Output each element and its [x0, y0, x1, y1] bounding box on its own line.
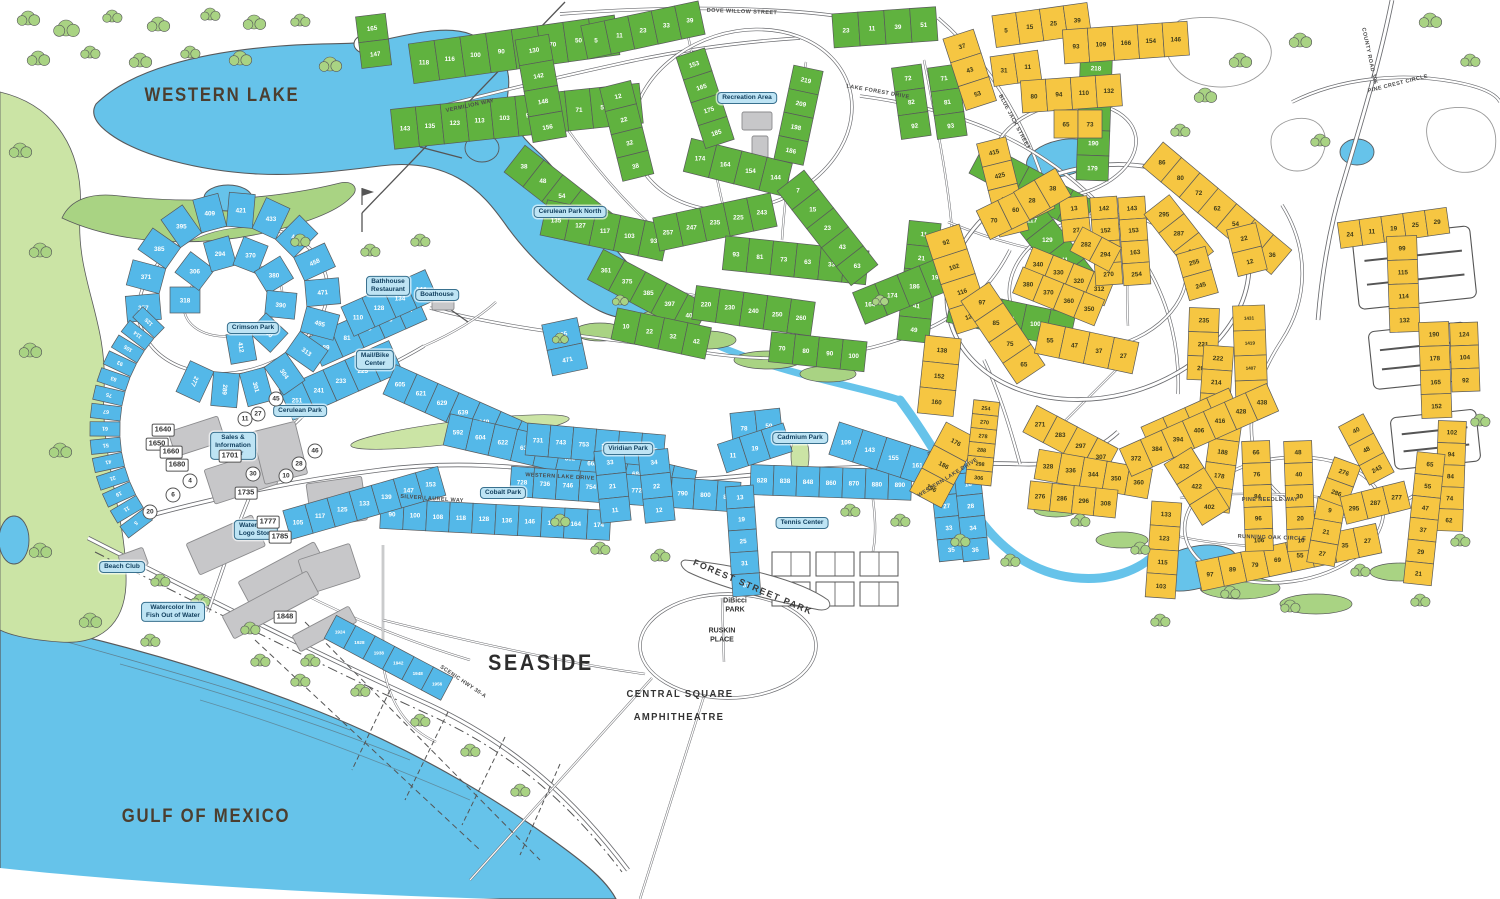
lot-number: 21 [609, 483, 617, 491]
lot-number: 433 [266, 216, 277, 223]
lot-number: 127 [575, 223, 586, 230]
tree-canopy [21, 147, 32, 158]
lot-number: 29 [1417, 549, 1425, 557]
circled-number: 28 [292, 457, 307, 472]
tree-icon [301, 654, 320, 666]
lot-number: 1407 [1246, 366, 1257, 371]
lot-number: 90 [498, 49, 506, 56]
lot-number: 33 [606, 459, 614, 467]
lot-number: 138 [936, 347, 948, 355]
lot-number: 384 [1152, 446, 1163, 453]
lot-number: 179 [1087, 165, 1098, 172]
circled-number: 20 [143, 505, 158, 520]
lot-number: 289 [220, 384, 228, 396]
circled-number: 6 [166, 488, 181, 503]
lot-number: 13 [1070, 205, 1078, 213]
lot-number: 19 [751, 445, 759, 452]
lot-number: 115 [1398, 269, 1409, 276]
lot-number: 790 [677, 491, 688, 498]
lot-number: 743 [556, 439, 567, 446]
lot-number: 166 [1121, 40, 1132, 47]
lot-number: 621 [416, 391, 427, 398]
lot-number: 75 [1006, 341, 1014, 348]
tree-canopy [1351, 568, 1359, 576]
lot-number: 271 [1035, 421, 1046, 428]
lot-number: 296 [1079, 498, 1090, 505]
lot-number: 117 [600, 228, 611, 235]
tree-canopy [1289, 38, 1299, 48]
tree-canopy [661, 552, 670, 561]
lot-number: 218 [1091, 65, 1102, 72]
tennis-center-banner: Tennis Center [776, 517, 829, 529]
lot-number: 66 [1252, 449, 1260, 456]
lot-number: 402 [1204, 504, 1215, 511]
building-number-box: 1848 [274, 611, 297, 624]
lot-number: 190 [1429, 331, 1440, 338]
tree-canopy [1291, 603, 1300, 612]
lot-number: 139 [381, 494, 392, 501]
lot-number: 800 [700, 492, 711, 499]
lot-number: 33 [663, 22, 671, 29]
lot-number: 49 [910, 327, 918, 335]
lot-number: 94 [1448, 451, 1456, 458]
tree-canopy [1301, 37, 1312, 48]
lot-number: 21 [918, 255, 926, 263]
tree-icon [147, 17, 170, 32]
lot-number: 81 [756, 254, 764, 261]
tree-canopy [1461, 537, 1470, 546]
lot-number: 39 [1074, 17, 1082, 24]
lot-number: 69 [1274, 557, 1282, 564]
lot-number: 79 [1251, 562, 1259, 569]
tree-icon [103, 10, 122, 22]
tree-canopy [461, 748, 469, 756]
lot-number: 21 [1415, 570, 1423, 578]
lot-number: 37 [1095, 348, 1103, 355]
lot-number: 1942 [393, 661, 404, 666]
lot-number: 71 [576, 107, 584, 114]
tree-canopy [1221, 590, 1229, 598]
lot-number: 241 [314, 388, 325, 395]
lot-number: 1956 [432, 681, 443, 686]
lot-number: 32 [669, 333, 677, 340]
lot-number: 254 [981, 406, 991, 413]
lot-number: 1924 [335, 630, 346, 635]
tree-canopy [361, 248, 369, 256]
lot-number: 143 [400, 125, 411, 132]
tree-canopy [1471, 57, 1480, 66]
lot-number: 235 [1199, 317, 1210, 324]
lot-number: 287 [1370, 500, 1381, 507]
lot-number: 282 [1081, 241, 1092, 248]
lot-number: 225 [733, 214, 744, 221]
lot-number: 22 [653, 483, 661, 491]
lot-number: 5 [594, 37, 598, 44]
lot-number: 29 [1434, 219, 1442, 226]
lot-number: 27 [943, 503, 951, 511]
lot-number: 73 [780, 256, 788, 263]
tree-canopy [1419, 18, 1429, 28]
lot-number: 160 [931, 399, 943, 407]
cerulean-park-banner: Cerulean Park [273, 405, 327, 417]
tree-canopy [141, 638, 149, 646]
lot-number: 153 [425, 481, 436, 488]
lot-number: 283 [1055, 432, 1066, 439]
lot-number: 110 [353, 314, 364, 321]
lot-number: 385 [154, 246, 165, 253]
tree-canopy [251, 658, 259, 666]
lot-number: 106 [1254, 537, 1265, 544]
tree-canopy [191, 49, 200, 58]
lot-number: 247 [686, 224, 697, 231]
tree-canopy [1131, 546, 1139, 554]
lot-number: 174 [887, 292, 898, 299]
road-surface [640, 696, 704, 899]
lot-number: 55 [1046, 337, 1054, 344]
lot-number: 860 [826, 480, 837, 487]
lot-number: 27 [1364, 538, 1372, 545]
lot-number: 270 [1103, 271, 1114, 279]
lot-number: 143 [1127, 205, 1138, 213]
lot-number: 336 [1065, 467, 1076, 474]
lot-number: 27 [1120, 353, 1128, 360]
lot-number: 308 [1100, 500, 1111, 507]
lot-number: 1948 [413, 671, 424, 676]
tree-canopy [891, 518, 899, 526]
tree-icon [411, 714, 430, 726]
tree-canopy [27, 56, 37, 66]
tree-canopy [1206, 92, 1217, 103]
lot-number: 25 [1412, 222, 1420, 229]
lot-number: 80 [802, 348, 810, 355]
lot-number: 320 [1074, 278, 1085, 285]
lot-number: 11 [869, 26, 876, 33]
lot-number: 190 [1088, 140, 1099, 147]
lot-number: 772 [631, 487, 642, 494]
tree-canopy [311, 657, 320, 666]
tree-canopy [901, 517, 910, 526]
tree-icon [411, 234, 430, 246]
lot-number: 370 [1043, 290, 1054, 297]
lot-number: 605 [395, 381, 406, 388]
tree-canopy [291, 678, 299, 686]
lot-number: 880 [872, 481, 883, 488]
tree-canopy [591, 546, 599, 554]
lot-number: 222 [1212, 355, 1223, 363]
tree-canopy [1181, 127, 1190, 136]
tree-canopy [79, 618, 89, 628]
lot-number: 164 [720, 162, 731, 169]
lot-number: 114 [1399, 293, 1410, 300]
lot-number: 380 [1023, 281, 1034, 288]
lot-number: 240 [748, 308, 759, 315]
tree-canopy [54, 25, 65, 36]
lot-number: 838 [780, 478, 791, 485]
tree-icon [591, 542, 610, 554]
tree-canopy [1001, 558, 1009, 566]
lot-number: 67 [103, 408, 110, 415]
lot-number: 604 [475, 435, 486, 442]
tree-canopy [1451, 538, 1459, 546]
lot-number: 30 [1296, 493, 1304, 500]
lot-number: 294 [1100, 252, 1111, 259]
lot-number: 40 [1295, 471, 1303, 478]
lot-number: 84 [1254, 493, 1262, 500]
lot-number: 62 [1445, 517, 1453, 524]
lot-number: 728 [517, 479, 528, 486]
lot-number: 39 [894, 24, 902, 31]
tree-icon [54, 20, 80, 37]
lot-number: 165 [366, 25, 378, 33]
tree-icon [181, 46, 200, 58]
lot-number: 80 [1030, 93, 1038, 100]
lot-number: 125 [337, 507, 348, 514]
lot-number: 86 [1158, 159, 1166, 166]
lot-number: 146 [525, 519, 536, 526]
lot-number: 622 [498, 440, 509, 447]
lot-number: 15 [809, 206, 817, 213]
lot-number: 23 [824, 225, 832, 232]
lot-number: 50 [575, 38, 583, 45]
lot-number: 78 [740, 425, 748, 432]
lot-number: 318 [180, 297, 191, 304]
lot-number: 297 [1075, 443, 1086, 450]
lot-number: 128 [479, 516, 490, 523]
ring-road-surface [640, 594, 816, 698]
lot-number: 36 [1269, 252, 1277, 259]
tree-canopy [147, 22, 157, 32]
lot-number: 55 [1424, 483, 1432, 491]
lot-number: 152 [1100, 227, 1111, 235]
lot-number: 286 [1057, 496, 1068, 503]
tree-canopy [521, 787, 530, 796]
lot-number: 54 [558, 193, 566, 200]
lot-number: 65 [1020, 362, 1028, 369]
tree-canopy [951, 538, 959, 546]
lot-number: 47 [1421, 505, 1429, 513]
lot-number: 85 [992, 320, 1000, 327]
tree-canopy [1171, 128, 1179, 136]
lot-number: 60 [1012, 207, 1020, 214]
lot-number: 154 [1146, 38, 1157, 45]
lot-number: 113 [475, 118, 486, 125]
tree-canopy [1011, 557, 1020, 566]
viridian-park-banner: Viridian Park [603, 443, 653, 455]
lot-number: 118 [419, 59, 430, 66]
road-surface [1292, 77, 1500, 102]
lot-number: 154 [745, 168, 756, 175]
lot-number: 372 [1131, 455, 1142, 462]
lot-number: 220 [701, 301, 712, 308]
tree-canopy [113, 13, 122, 22]
tree-icon [201, 8, 220, 20]
tree-canopy [301, 658, 309, 666]
lot-number: 90 [388, 511, 396, 518]
pond [0, 516, 29, 564]
lot-number: 103 [1155, 583, 1166, 591]
tree-canopy [1141, 545, 1150, 554]
tree-icon [141, 634, 160, 646]
tree-canopy [91, 617, 102, 628]
lot-number: 251 [292, 397, 303, 404]
lot-number: 592 [453, 429, 464, 436]
lot-number: 746 [563, 483, 574, 490]
lot-number: 416 [1215, 418, 1226, 425]
tree-canopy [351, 688, 359, 696]
lot-number: 70 [778, 345, 786, 352]
lot-number: 103 [499, 115, 510, 122]
lot-number: 12 [655, 507, 663, 515]
tree-canopy [1461, 58, 1469, 66]
lot-number: 344 [1088, 471, 1099, 478]
lot-number: 81 [344, 335, 352, 342]
lot-number: 33 [945, 525, 953, 533]
lot-number: 28 [1028, 197, 1036, 204]
tree-icon [461, 744, 480, 756]
lot-number: 287 [1174, 230, 1185, 237]
lot-number: 152 [934, 373, 946, 381]
tree-icon [1311, 134, 1330, 146]
lot-number: 295 [1349, 505, 1360, 512]
lot-number: 135 [551, 217, 562, 224]
tree-canopy [841, 508, 849, 516]
lot-number: 731 [533, 437, 544, 444]
lot-number: 15 [1026, 24, 1034, 31]
circled-number: 46 [308, 444, 323, 459]
tree-canopy [31, 347, 42, 358]
tree-canopy [421, 237, 430, 246]
lot-number: 135 [425, 123, 436, 130]
lot-number: 31 [741, 560, 749, 568]
tree-canopy [1231, 589, 1240, 598]
tree-canopy [129, 58, 139, 68]
tree-canopy [1481, 417, 1490, 426]
tree-canopy [61, 447, 72, 458]
tree-canopy [319, 62, 329, 72]
tree-canopy [161, 577, 170, 586]
lot-number: 11 [616, 32, 623, 39]
tree-canopy [29, 548, 39, 558]
lot-number: 100 [410, 513, 421, 520]
tree-canopy [41, 247, 52, 258]
tree-canopy [371, 247, 380, 256]
tree-canopy [851, 507, 860, 516]
lot-number: 118 [456, 515, 467, 522]
lot-number: 629 [437, 400, 448, 407]
lot-number: 288 [977, 447, 987, 454]
lot-number: 340 [1033, 261, 1044, 268]
tree-icon [511, 784, 530, 796]
lot-number: 92 [1462, 377, 1470, 384]
lot-number: 233 [336, 378, 347, 385]
tree-canopy [243, 20, 253, 30]
tree-canopy [81, 50, 89, 58]
lot-number: 74 [1446, 495, 1454, 502]
lot-number: 136 [502, 517, 513, 524]
lot-number: 295 [1159, 211, 1170, 218]
lot-number: 1431 [1244, 316, 1255, 321]
lot-number: 110 [1079, 90, 1090, 97]
lot-number: 260 [796, 315, 807, 322]
bathhouse-restaurant-banner: Bathhouse Restaurant [366, 276, 410, 296]
lot-number: 100 [848, 353, 859, 360]
tree-canopy [411, 718, 419, 726]
tree-canopy [1229, 58, 1239, 68]
lot-number: 432 [1179, 463, 1190, 470]
lot-number: 34 [650, 459, 658, 467]
lot-number: 97 [1206, 571, 1214, 578]
lot-number: 163 [1130, 249, 1141, 257]
lot-number: 11 [1368, 228, 1375, 235]
tree-icon [291, 14, 310, 26]
lot-number: 55 [1296, 552, 1304, 559]
lot-number: 35 [947, 547, 955, 555]
tree-canopy [103, 14, 111, 22]
boathouse-banner: Boathouse [415, 289, 459, 301]
lot-number: 152 [1431, 403, 1442, 410]
lot-number: 31 [1000, 67, 1008, 74]
lot-number: 10 [1297, 537, 1305, 544]
tree-canopy [421, 717, 430, 726]
lot-number: 72 [1195, 190, 1203, 197]
lot-number: 65 [1426, 461, 1434, 469]
lot-number: 298 [975, 461, 985, 468]
lot-number: 828 [757, 477, 768, 484]
tree-canopy [552, 336, 559, 343]
tree-canopy [301, 677, 310, 686]
tree-icon [1419, 13, 1442, 28]
lot-number: 37 [742, 582, 750, 590]
tree-canopy [331, 61, 342, 72]
lot-number: 93 [1072, 43, 1080, 50]
lot-number: 132 [1104, 88, 1115, 95]
tree-canopy [49, 448, 59, 458]
tree-canopy [1194, 93, 1204, 103]
tree-canopy [29, 248, 39, 258]
lot-number: 70 [990, 217, 998, 224]
tree-canopy [361, 687, 370, 696]
recreation-area-banner: Recreation Area [717, 92, 777, 104]
lot-number: 128 [374, 305, 385, 312]
lot-number: 73 [1086, 121, 1094, 128]
tree-canopy [872, 298, 879, 305]
lot-number: 360 [1064, 298, 1075, 305]
wetland-contour [1427, 107, 1496, 172]
tree-canopy [91, 49, 100, 58]
lot-number: 76 [1253, 471, 1261, 478]
tree-canopy [67, 24, 79, 36]
tree-canopy [301, 237, 310, 246]
tree-icon [891, 514, 910, 526]
tree-icon [1071, 514, 1090, 526]
tree-canopy [621, 298, 629, 306]
lot-number: 11 [611, 507, 619, 515]
lot-number: 421 [236, 208, 247, 215]
lot-number: 25 [739, 538, 747, 546]
lot-number: 99 [1398, 245, 1406, 252]
lot-number: 105 [293, 519, 304, 526]
lot-number: 754 [586, 484, 597, 491]
lot-number: 395 [176, 224, 187, 231]
circled-number: 10 [279, 469, 294, 484]
lot-number: 7 [796, 187, 800, 194]
lot-number: 63 [854, 263, 862, 270]
lot-number: 230 [725, 305, 736, 312]
tree-canopy [291, 238, 299, 246]
lot-number: 143 [865, 447, 876, 454]
tree-icon [1151, 614, 1170, 626]
lot-number: 409 [204, 210, 215, 217]
